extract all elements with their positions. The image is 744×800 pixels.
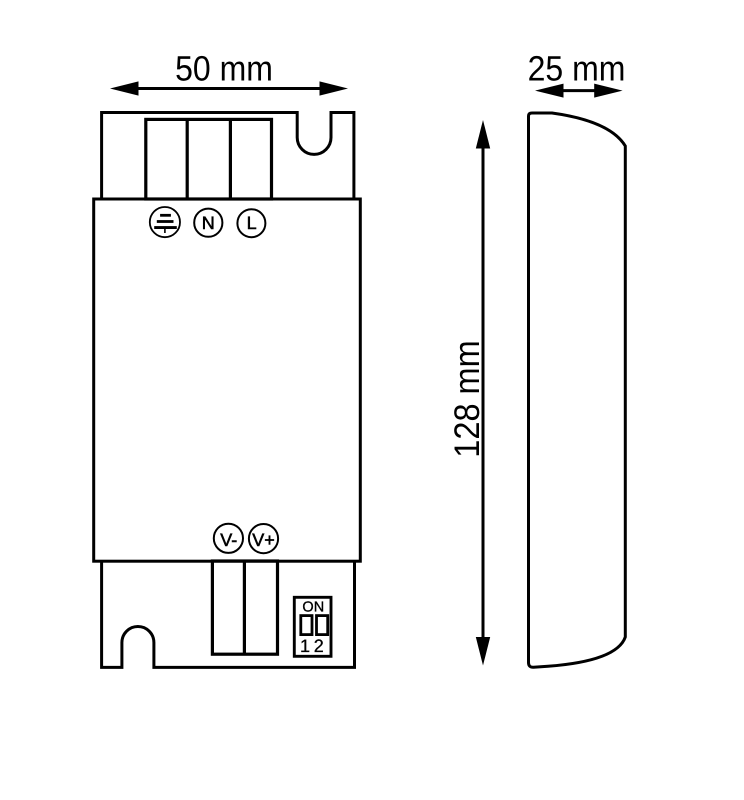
svg-text:25 mm: 25 mm <box>528 49 626 89</box>
svg-text:V+: V+ <box>252 530 275 550</box>
svg-text:50 mm: 50 mm <box>175 49 273 89</box>
svg-text:128 mm: 128 mm <box>447 340 486 457</box>
svg-text:N: N <box>202 213 215 233</box>
svg-text:L: L <box>247 213 257 233</box>
svg-text:V-: V- <box>220 530 237 550</box>
svg-text:2: 2 <box>314 636 324 656</box>
svg-text:ON: ON <box>302 600 324 616</box>
svg-text:1: 1 <box>300 636 310 656</box>
